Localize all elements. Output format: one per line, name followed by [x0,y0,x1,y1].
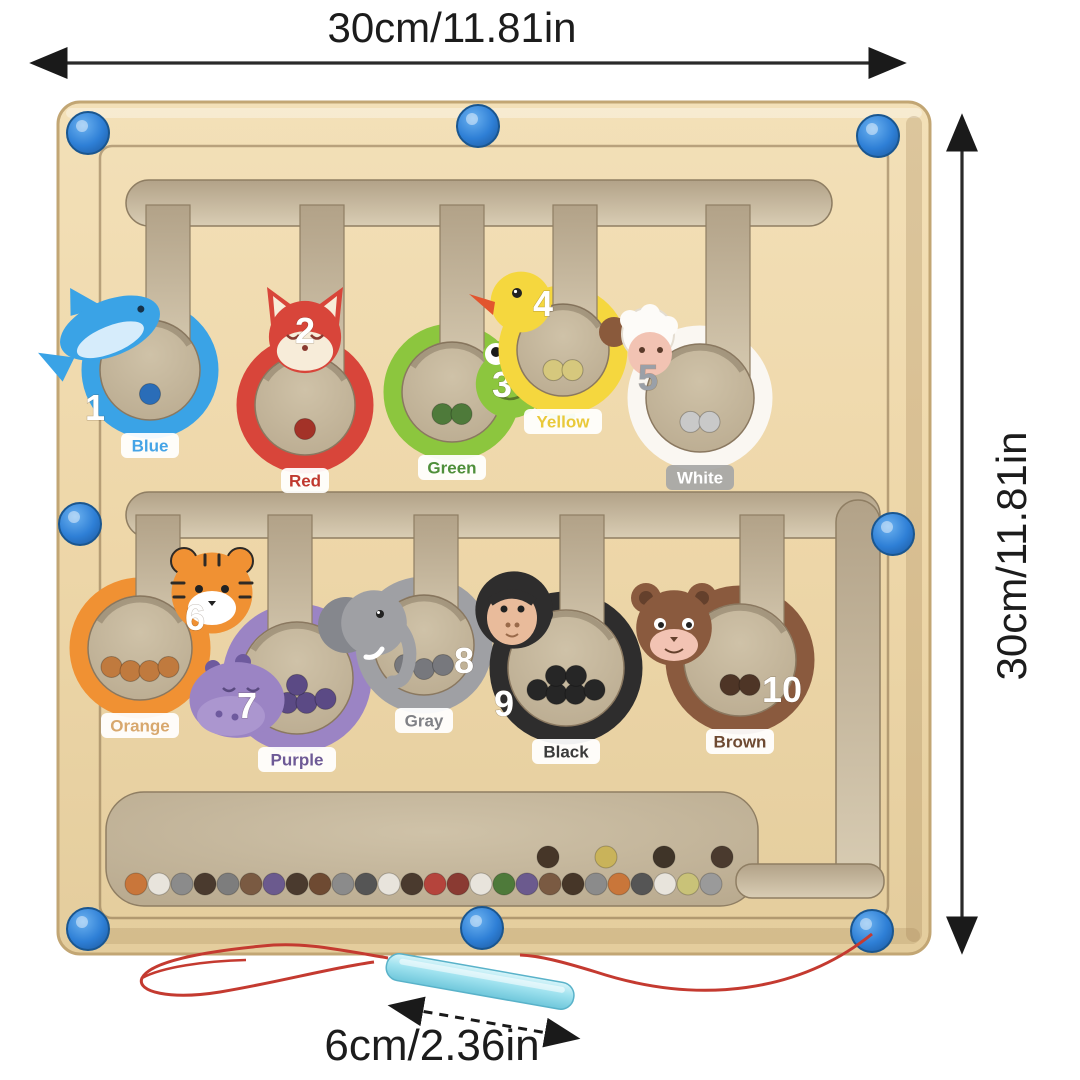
magnetic-ball [546,665,567,686]
duck-eye [512,288,522,298]
gorilla-eye [501,606,508,613]
color-label: Red [289,472,321,491]
trough-ball-raised [537,846,559,868]
color-label: Orange [110,717,170,736]
peg-highlight [881,521,893,533]
duck-eye-spark [514,290,517,293]
peg [457,105,499,147]
pen-string-loop-inner [142,960,246,978]
trough-ball [286,873,308,895]
trough-ball [263,873,285,895]
trough-ball [654,873,676,895]
gorilla-eye [518,606,525,613]
magnetic-ball [287,674,308,695]
trough-ball [608,873,630,895]
station-number: 1 [85,387,105,428]
trough-ball [424,873,446,895]
trough-ball [171,873,193,895]
magnetic-ball [139,660,160,681]
peg [872,513,914,555]
station-number: 6 [185,597,205,638]
sheep-fleece-bump [620,310,640,330]
trough-ball [217,873,239,895]
peg-highlight [470,915,482,927]
trough-ball [125,873,147,895]
bear-pupil [658,622,664,628]
exit-slot [736,864,884,898]
hippo-nostril [216,711,223,718]
magnetic-ball [120,660,141,681]
trough-ball [309,873,331,895]
magnetic-ball [562,360,583,381]
trough-ball [700,873,722,895]
trough-ball [378,873,400,895]
trough-ball [194,873,216,895]
peg-highlight [76,120,88,132]
peg-highlight [866,123,878,135]
magnetic-ball [739,674,760,695]
magnetic-ball [101,656,122,677]
dimension-right-height: 30cm/11.81in [962,118,1035,950]
sheep-fleece-bump [640,304,660,324]
station-number: 10 [762,669,802,710]
top-width-label: 30cm/11.81in [327,4,576,51]
trough-ball [355,873,377,895]
elephant-eye [376,610,384,618]
trough-ball [631,873,653,895]
peg-head [67,908,109,950]
color-label: White [677,469,723,488]
trough-ball [585,873,607,895]
trough-ball [493,873,515,895]
trough-ball [677,873,699,895]
trough-ball [470,873,492,895]
color-label: Green [427,459,476,478]
magnetic-ball [432,404,453,425]
sheep-eye [657,347,663,353]
peg [67,112,109,154]
dimension-top-width: 30cm/11.81in [34,4,902,63]
magnetic-pen [384,952,576,1012]
trough-ball [401,873,423,895]
magnetic-ball [699,411,720,432]
peg-head [872,513,914,555]
magnetic-ball [315,688,336,709]
peg-head [59,503,101,545]
bear-pupil [686,622,692,628]
elephant-eye-spark [377,611,380,614]
bear-muzzle [650,629,698,661]
magnetic-ball [433,655,454,676]
trough-ball [539,873,561,895]
station-number: 4 [533,283,553,324]
peg [67,908,109,950]
magnetic-ball [451,404,472,425]
peg-highlight [76,916,88,928]
peg-head [67,112,109,154]
trough-ball-raised [653,846,675,868]
peg-head [457,105,499,147]
magnetic-ball [566,665,587,686]
station-number: 7 [237,685,257,726]
magnetic-ball [295,419,316,440]
product-photo: 30cm/11.81in 30cm/11.81in 1Blue2Red3Gree… [0,0,1080,1080]
magnetic-ball [720,674,741,695]
peg [461,907,503,949]
peg-highlight [68,511,80,523]
gorilla-nostril [515,623,520,628]
magnetic-ball [680,411,701,432]
station-number: 8 [454,640,474,681]
station-number: 2 [295,310,315,351]
color-label: Purple [271,751,324,770]
trough-ball [447,873,469,895]
station-number: 9 [494,683,514,724]
gorilla-nostril [506,623,511,628]
right-height-label: 30cm/11.81in [988,431,1035,680]
magnetic-ball [158,656,179,677]
sheep-eye [639,347,645,353]
pen-length-label: 6cm/2.36in [324,1021,539,1070]
trough-ball [148,873,170,895]
tiger-eye [195,585,203,593]
trough-ball-raised [595,846,617,868]
maze-board: 1Blue2Red3Green4Yellow5White6Orange7Purp… [20,102,930,954]
magnetic-ball [543,360,564,381]
peg [857,115,899,157]
trough-ball-raised [711,846,733,868]
right-vertical-channel [836,500,880,890]
peg-head [857,115,899,157]
color-label: Brown [714,733,767,752]
peg-highlight [860,918,872,930]
magnetic-ball [527,679,548,700]
peg-head [461,907,503,949]
sheep-fleece-bump [658,316,678,336]
scene: 30cm/11.81in 30cm/11.81in 1Blue2Red3Gree… [0,0,1080,1080]
trough-ball [240,873,262,895]
peg-highlight [466,113,478,125]
peg [59,503,101,545]
magnetic-ball [584,679,605,700]
color-label: Black [543,743,589,762]
magnetic-ball [140,384,161,405]
color-label: Blue [132,437,169,456]
trough-ball [332,873,354,895]
tiger-eye [221,585,229,593]
trough-ball [516,873,538,895]
trough-ball [562,873,584,895]
color-label: Gray [405,712,444,731]
color-label: Yellow [537,413,591,432]
station-number: 5 [638,357,658,398]
magnetic-ball [414,659,435,680]
